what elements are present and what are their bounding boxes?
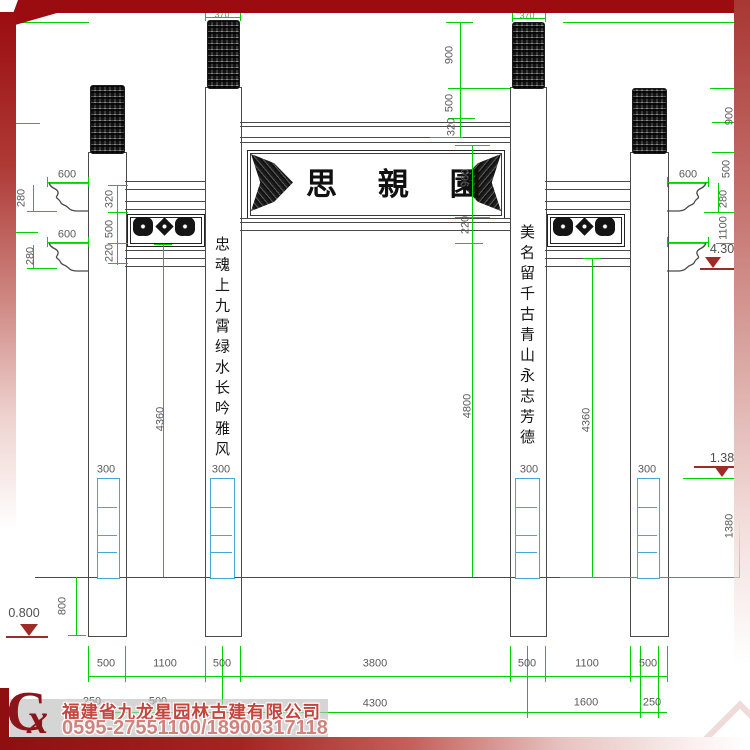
column-capital-carving — [90, 85, 125, 154]
foundation-block — [210, 478, 235, 579]
cad-line — [240, 126, 510, 127]
cad-line — [68, 635, 86, 636]
bottom-border-band — [0, 737, 750, 750]
dim-label: 300 — [212, 465, 230, 476]
couplet-right: 美名留千古青山永志芳德 — [519, 224, 534, 460]
dim-label: 320 — [447, 118, 458, 136]
cad-line — [47, 182, 88, 183]
lattice-panel-left — [127, 214, 205, 247]
cad-line — [98, 507, 117, 508]
cad-line — [125, 266, 205, 267]
cad-line — [545, 250, 630, 251]
dim-label: 1.38 — [710, 452, 734, 465]
couplet-left: 忠魂上九霄绿水长吟雅风 — [214, 236, 229, 466]
cad-line — [13, 232, 38, 233]
cad-line — [638, 507, 657, 508]
cad-line — [516, 507, 537, 508]
dim-label: 1600 — [574, 698, 598, 709]
cad-line — [211, 535, 232, 536]
cad-line — [205, 646, 206, 682]
cad-line — [108, 263, 128, 264]
dim-label: 300 — [97, 465, 115, 476]
cad-line — [27, 268, 57, 269]
cad-line — [683, 478, 740, 479]
dim-label: 500 — [97, 659, 115, 670]
dim-label: 4.30 — [710, 243, 734, 256]
cad-line — [460, 22, 461, 137]
cad-line — [630, 646, 631, 682]
column-capital-carving — [632, 88, 667, 154]
cad-line — [108, 212, 128, 213]
cad-line — [545, 13, 546, 22]
cad-line — [516, 535, 537, 536]
cad-line — [545, 189, 630, 190]
dim-label: 500 — [722, 160, 733, 178]
cad-layer: 思 親 園 忠魂上九霄绿水长吟雅风 美名留千古青山永志芳德 3703709005… — [0, 0, 750, 750]
cad-line — [211, 507, 232, 508]
dim-label: 3800 — [363, 659, 387, 670]
dim-label: 4300 — [363, 699, 387, 710]
lattice-panel-right — [547, 214, 625, 247]
dim-label: 4800 — [463, 394, 474, 418]
cad-line — [108, 185, 128, 186]
cad-line — [545, 181, 630, 182]
dim-label: 1100 — [153, 659, 177, 670]
cad-line — [98, 552, 117, 553]
dim-label: 280 — [17, 189, 28, 207]
eave-bracket — [46, 182, 88, 212]
dim-label: 500 — [105, 220, 116, 238]
flower-carving — [133, 217, 153, 236]
cad-line — [545, 646, 546, 682]
cad-line — [510, 646, 511, 682]
dim-label: 600 — [679, 170, 697, 181]
cad-line — [545, 209, 630, 210]
dim-label: 500 — [639, 659, 657, 670]
left-border-band — [0, 12, 16, 712]
cad-line — [708, 177, 709, 187]
dim-label: 500 — [518, 659, 536, 670]
dim-label: 250 — [643, 698, 661, 709]
cad-line — [88, 177, 89, 187]
cad-line — [430, 137, 463, 138]
cad-line — [667, 237, 668, 247]
dim-label: 300 — [638, 465, 656, 476]
cad-line — [27, 211, 57, 212]
cad-line — [125, 209, 205, 210]
cad-line — [47, 237, 48, 247]
cad-line — [125, 258, 205, 259]
left-corner-strip — [0, 688, 9, 750]
cad-line — [667, 182, 708, 183]
cad-line — [545, 201, 630, 202]
cad-line — [12, 123, 40, 124]
cad-line — [240, 646, 241, 682]
dim-label: 220 — [105, 244, 116, 262]
cad-line — [240, 137, 510, 138]
cad-line — [240, 142, 510, 143]
dim-label: 280 — [26, 247, 37, 265]
foundation-block — [515, 478, 540, 579]
cad-line — [88, 646, 89, 682]
dim-label: 320 — [105, 190, 116, 208]
dim-label: 500 — [213, 659, 231, 670]
cad-line — [240, 122, 510, 123]
cad-line — [88, 237, 89, 247]
cad-line — [125, 189, 205, 190]
dim-label: 1100 — [719, 216, 730, 240]
level-marker — [714, 466, 730, 477]
cad-line — [125, 250, 205, 251]
dim-label: 300 — [520, 465, 538, 476]
cad-line — [205, 12, 206, 21]
drawing-canvas: 思 親 園 忠魂上九霄绿水长吟雅风 美名留千古青山永志芳德 3703709005… — [0, 0, 750, 750]
right-border-band — [734, 0, 750, 700]
cad-line — [638, 552, 657, 553]
cad-line — [47, 177, 48, 187]
cad-line — [667, 242, 708, 243]
cad-line — [117, 185, 118, 265]
cad-line — [704, 212, 737, 213]
dim-label: 600 — [58, 230, 76, 241]
cad-line — [211, 552, 232, 553]
cad-line — [240, 12, 241, 21]
cad-line — [545, 266, 630, 267]
dim-label: 960 — [461, 169, 472, 187]
dim-label: 1100 — [575, 659, 599, 670]
dim-label: 4360 — [582, 408, 593, 432]
foundation-block — [97, 478, 120, 579]
level-marker — [705, 257, 721, 268]
dim-label: 280 — [719, 190, 730, 208]
flower-carving — [553, 217, 573, 236]
cad-line — [47, 242, 88, 243]
dim-label: 500 — [445, 94, 456, 112]
cad-line — [125, 201, 205, 202]
cad-line — [125, 646, 126, 682]
dim-label: 600 — [58, 170, 76, 181]
cad-line — [512, 13, 513, 22]
column-capital-carving — [207, 20, 240, 89]
cad-line — [125, 181, 205, 182]
dim-label: 800 — [58, 597, 69, 615]
cad-line — [76, 577, 77, 635]
cad-line — [667, 646, 668, 682]
level-marker — [20, 624, 38, 636]
cad-line — [563, 22, 737, 23]
flower-carving — [595, 217, 615, 236]
dim-label: 4360 — [156, 407, 167, 431]
cad-line — [667, 177, 668, 187]
cad-line — [88, 676, 667, 677]
eave-bracket — [667, 182, 709, 212]
cad-line — [33, 185, 34, 212]
cad-line — [710, 88, 737, 89]
cad-line — [472, 145, 473, 577]
cad-line — [448, 88, 510, 89]
column-capital-carving — [512, 22, 545, 89]
cad-line — [516, 552, 537, 553]
dim-label: 220 — [461, 216, 472, 234]
dim-label: 900 — [445, 46, 456, 64]
cad-line — [638, 535, 657, 536]
flower-carving — [175, 217, 195, 236]
foundation-block — [637, 478, 660, 579]
cad-line — [455, 243, 483, 244]
cad-line — [98, 535, 117, 536]
cad-line — [700, 268, 735, 270]
cad-line — [694, 466, 737, 468]
